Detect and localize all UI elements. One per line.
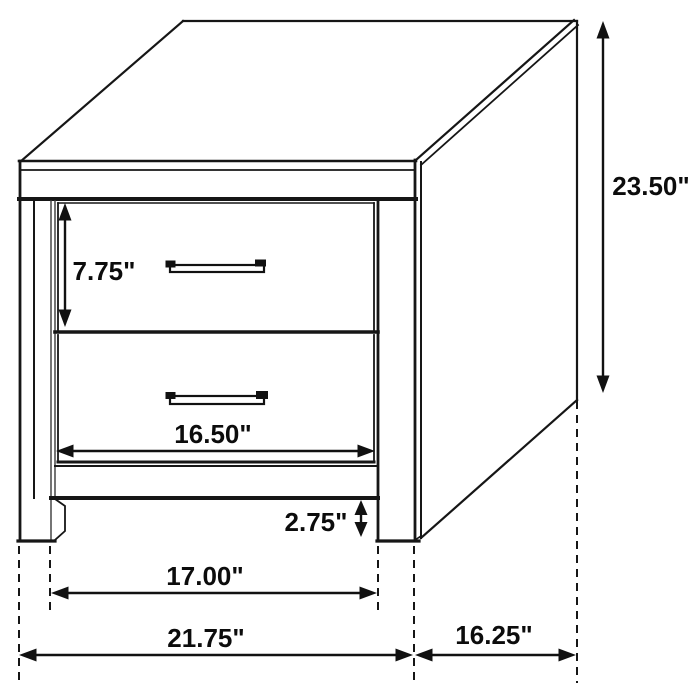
dim-leg-height: 2.75"	[285, 500, 368, 537]
dim-overall-depth: 16.25"	[415, 620, 576, 662]
drawer1-handle-left-post	[166, 261, 176, 268]
left-leg-depth-face	[55, 499, 65, 540]
top-face	[20, 20, 578, 165]
top-right-edge-outer	[416, 20, 574, 160]
arrowhead-up-icon	[59, 203, 72, 221]
dim-overall-width: 21.75"	[19, 623, 413, 662]
dim-drawer-height-label: 7.75"	[73, 256, 136, 286]
drawer1-handle	[170, 265, 264, 272]
top-right-edge-inner	[421, 25, 578, 165]
arrowhead-right-icon	[396, 649, 414, 662]
arrowhead-down-icon	[59, 310, 72, 328]
drawer2-handle-left-post	[166, 392, 176, 399]
dim-drawer-width: 16.50"	[56, 419, 375, 458]
drawer1-handle-right-post	[255, 260, 266, 267]
arrowhead-down-icon	[355, 522, 368, 537]
arrowhead-right-icon	[358, 445, 376, 458]
arrowhead-right-icon	[559, 649, 577, 662]
dim-drawer-width-label: 16.50"	[174, 419, 251, 449]
arrowhead-left-icon	[415, 649, 433, 662]
side-bottom-edge	[421, 400, 577, 538]
drawer2-handle	[170, 396, 264, 404]
dim-overall-depth-label: 16.25"	[455, 620, 532, 650]
diagram-canvas: 23.50" 7.75" 16.50" 2.75" 17.00" 21.75"	[0, 0, 700, 700]
arrowhead-right-icon	[360, 587, 378, 600]
dim-overall-height-label: 23.50"	[612, 171, 689, 201]
side-panel	[421, 21, 577, 538]
front-face	[19, 160, 416, 541]
dim-leg-height-label: 2.75"	[285, 507, 348, 537]
arrowhead-up-icon	[597, 21, 610, 39]
drawer2-handle-right-post	[256, 391, 268, 399]
dim-between-legs-label: 17.00"	[166, 561, 243, 591]
arrowhead-up-icon	[355, 500, 368, 515]
dim-between-legs: 17.00"	[51, 561, 377, 600]
top-left-edge	[20, 21, 183, 162]
dim-overall-height: 23.50"	[597, 21, 690, 393]
arrowhead-left-icon	[19, 649, 37, 662]
arrowhead-down-icon	[597, 376, 610, 394]
dim-drawer-height: 7.75"	[59, 203, 136, 327]
arrowhead-left-icon	[51, 587, 69, 600]
nightstand-dimension-diagram: 23.50" 7.75" 16.50" 2.75" 17.00" 21.75"	[0, 0, 700, 700]
dim-overall-width-label: 21.75"	[167, 623, 244, 653]
